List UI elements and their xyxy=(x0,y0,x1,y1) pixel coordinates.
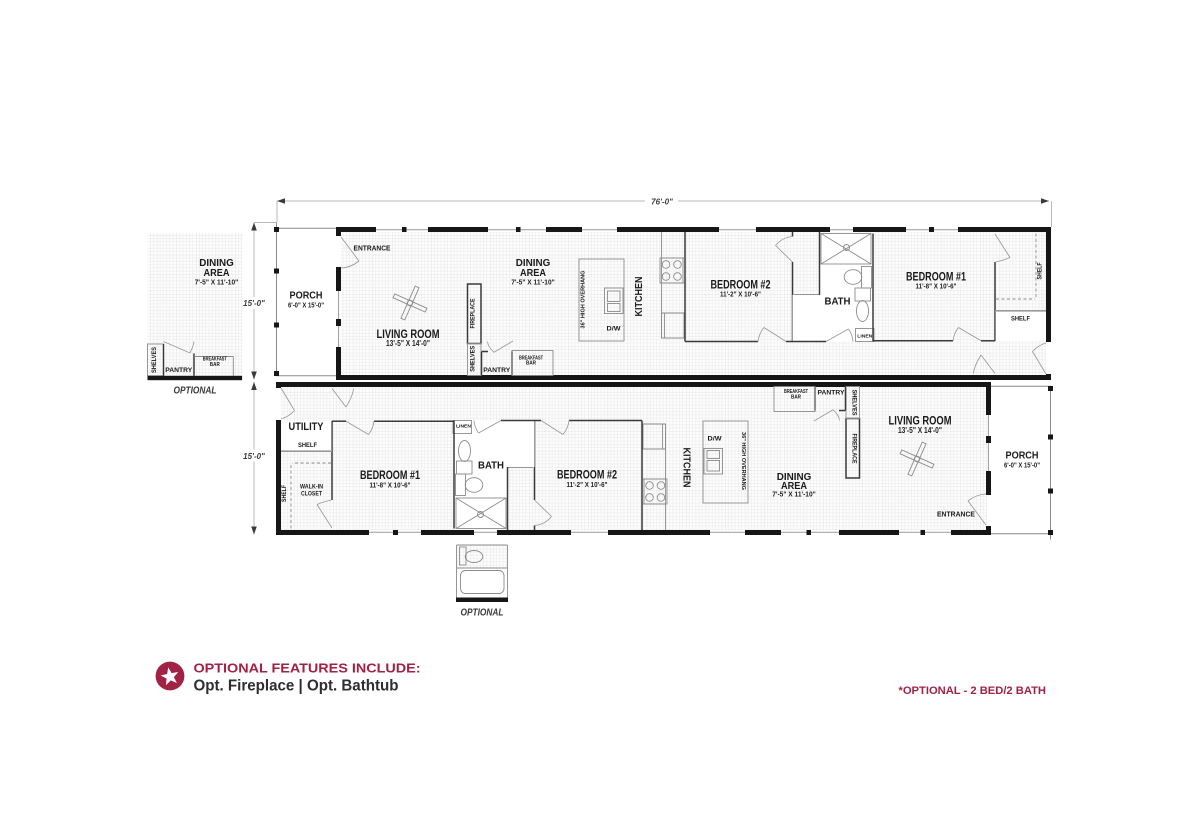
svg-text:PORCH: PORCH xyxy=(1006,451,1039,462)
svg-text:AREA: AREA xyxy=(204,268,230,279)
svg-text:6'-0" X 15'-0": 6'-0" X 15'-0" xyxy=(288,303,324,310)
svg-text:SHELF: SHELF xyxy=(1038,262,1044,279)
svg-text:6'-0" X 15'-0": 6'-0" X 15'-0" xyxy=(1004,463,1040,470)
svg-text:LINEN: LINEN xyxy=(857,333,873,339)
svg-text:BATH: BATH xyxy=(478,460,504,471)
svg-text:OPTIONAL: OPTIONAL xyxy=(461,607,504,619)
svg-text:UTILITY: UTILITY xyxy=(289,421,325,433)
svg-text:36" HIGH OVERHANG: 36" HIGH OVERHANG xyxy=(740,432,746,490)
svg-text:11'-2" X 10'-6": 11'-2" X 10'-6" xyxy=(567,480,608,489)
svg-text:Opt. Fireplace | Opt. Bathtub: Opt. Fireplace | Opt. Bathtub xyxy=(194,677,399,694)
svg-text:PANTRY: PANTRY xyxy=(165,367,193,374)
svg-text:7'-5" X 11'-10": 7'-5" X 11'-10" xyxy=(772,492,816,499)
svg-text:SHELF: SHELF xyxy=(298,442,317,449)
svg-text:OPTIONAL FEATURES INCLUDE:: OPTIONAL FEATURES INCLUDE: xyxy=(194,660,421,675)
svg-text:LINEN: LINEN xyxy=(456,424,472,430)
svg-text:7'-5" X 11'-10": 7'-5" X 11'-10" xyxy=(511,280,555,287)
svg-text:BAR: BAR xyxy=(526,361,536,367)
svg-text:SHELVES: SHELVES xyxy=(152,347,158,373)
svg-text:SHELVES: SHELVES xyxy=(470,346,476,372)
svg-text:PANTRY: PANTRY xyxy=(818,390,846,397)
svg-text:15'-0": 15'-0" xyxy=(243,452,265,461)
svg-text:11'-8" X 10'-6": 11'-8" X 10'-6" xyxy=(370,481,411,490)
svg-text:ENTRANCE: ENTRANCE xyxy=(937,510,975,519)
svg-text:KITCHEN: KITCHEN xyxy=(633,277,645,317)
svg-text:WALK-IN: WALK-IN xyxy=(300,485,323,491)
svg-text:AREA: AREA xyxy=(781,481,807,492)
svg-text:13'-5" X 14'-0": 13'-5" X 14'-0" xyxy=(898,426,942,435)
svg-text:AREA: AREA xyxy=(520,268,546,279)
svg-text:36" HIGH OVERHANG: 36" HIGH OVERHANG xyxy=(581,271,587,329)
svg-text:PANTRY: PANTRY xyxy=(483,367,511,374)
svg-text:*OPTIONAL - 2 BED/2 BATH: *OPTIONAL - 2 BED/2 BATH xyxy=(899,685,1047,697)
svg-text:D/W: D/W xyxy=(708,436,723,443)
svg-text:BAR: BAR xyxy=(791,394,801,400)
svg-text:7'-5" X 11'-10": 7'-5" X 11'-10" xyxy=(195,280,239,287)
svg-text:11'-2" X 10'-6": 11'-2" X 10'-6" xyxy=(720,290,761,299)
svg-text:15'-0": 15'-0" xyxy=(243,299,265,308)
svg-text:BATH: BATH xyxy=(825,296,851,307)
svg-text:13'-5" X 14'-0": 13'-5" X 14'-0" xyxy=(386,339,430,348)
svg-text:BAR: BAR xyxy=(210,362,220,368)
svg-text:FIREPLACE: FIREPLACE xyxy=(851,434,857,464)
svg-text:KITCHEN: KITCHEN xyxy=(681,448,693,488)
svg-text:ENTRANCE: ENTRANCE xyxy=(354,244,391,253)
svg-text:CLOSET: CLOSET xyxy=(301,492,322,498)
svg-text:FIREPLACE: FIREPLACE xyxy=(470,299,476,329)
svg-text:PORCH: PORCH xyxy=(290,291,323,302)
svg-text:76'-0": 76'-0" xyxy=(651,197,673,206)
svg-text:SHELF: SHELF xyxy=(282,485,288,502)
svg-text:OPTIONAL: OPTIONAL xyxy=(174,385,217,397)
svg-text:11'-8" X 10'-6": 11'-8" X 10'-6" xyxy=(916,282,957,291)
svg-text:SHELVES: SHELVES xyxy=(851,390,857,416)
svg-text:SHELF: SHELF xyxy=(1011,316,1030,323)
svg-text:D/W: D/W xyxy=(607,326,622,333)
